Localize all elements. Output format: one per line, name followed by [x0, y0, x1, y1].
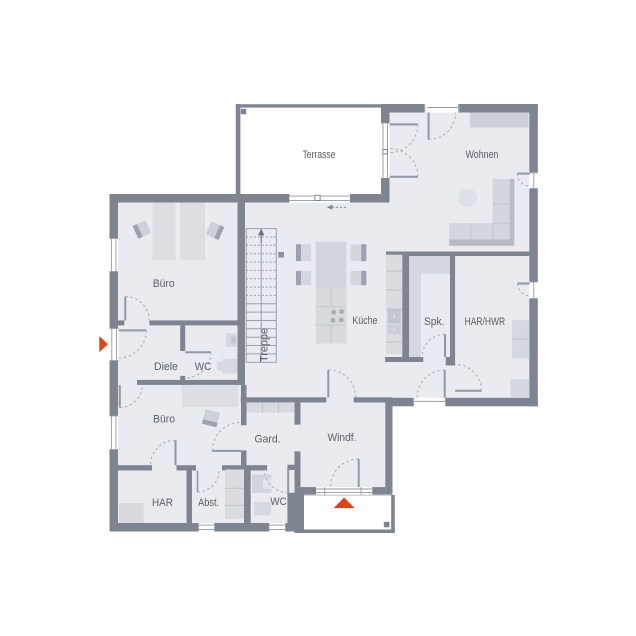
svg-text:Büro: Büro: [153, 278, 175, 290]
svg-text:Spk.: Spk.: [424, 316, 445, 328]
svg-text:HAR: HAR: [152, 497, 173, 509]
svg-text:Terrasse: Terrasse: [303, 149, 336, 161]
svg-text:WC: WC: [195, 361, 212, 373]
svg-text:HAR/HWR: HAR/HWR: [465, 316, 506, 328]
svg-text:Büro: Büro: [153, 413, 175, 425]
svg-text:Diele: Diele: [154, 361, 178, 373]
svg-text:Küche: Küche: [352, 315, 377, 327]
svg-text:WC: WC: [270, 496, 287, 508]
svg-text:Wohnen: Wohnen: [466, 149, 499, 161]
svg-text:Treppe: Treppe: [259, 328, 271, 362]
svg-text:Gard.: Gard.: [255, 434, 281, 446]
svg-text:Abst.: Abst.: [198, 497, 219, 509]
svg-text:Windf.: Windf.: [328, 432, 357, 444]
